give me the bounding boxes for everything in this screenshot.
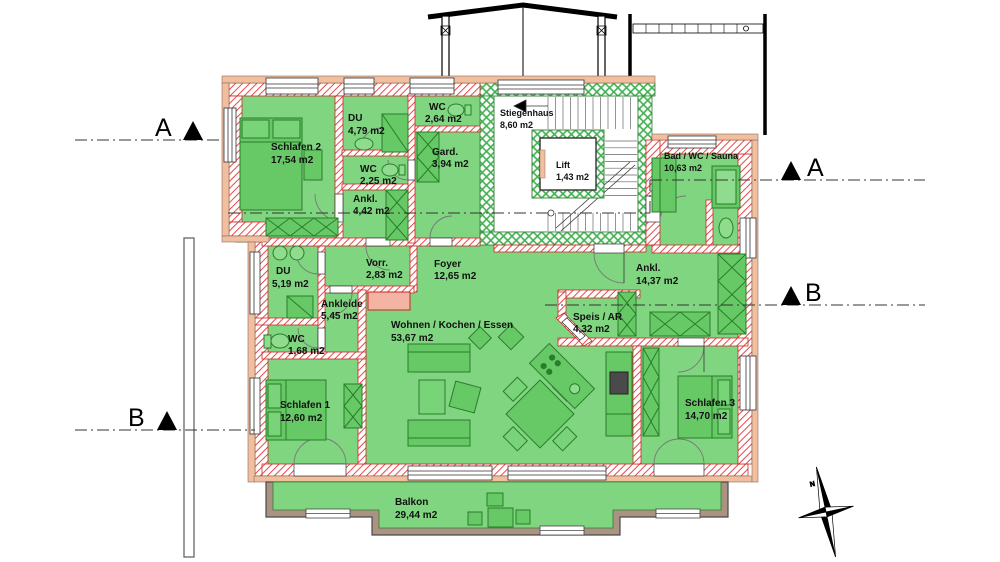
svg-text:Schlafen 3: Schlafen 3 xyxy=(685,398,735,409)
svg-text:Ankl.: Ankl. xyxy=(353,194,378,205)
svg-text:Bad / WC / Sauna: Bad / WC / Sauna xyxy=(664,151,739,161)
svg-text:WC: WC xyxy=(360,164,377,175)
svg-text:1,68 m2: 1,68 m2 xyxy=(288,346,325,357)
svg-text:A: A xyxy=(155,114,172,142)
section-marker-b-right: B xyxy=(781,279,822,307)
window xyxy=(668,136,716,148)
svg-text:DU: DU xyxy=(348,113,362,124)
svg-text:Speis / AR: Speis / AR xyxy=(573,312,623,323)
toilet-bad xyxy=(719,218,733,238)
svg-text:14,70 m2: 14,70 m2 xyxy=(685,411,728,422)
window xyxy=(740,356,756,410)
balcony xyxy=(266,482,728,535)
kitchen-counter xyxy=(606,352,632,436)
wardrobe-schlafen-1 xyxy=(344,384,362,428)
window xyxy=(224,108,236,162)
section-marker-a-right: A xyxy=(781,154,824,182)
svg-text:4,42 m2: 4,42 m2 xyxy=(353,206,390,217)
sofa xyxy=(408,344,470,372)
svg-text:5,19 m2: 5,19 m2 xyxy=(272,279,309,290)
svg-text:1,43 m2: 1,43 m2 xyxy=(556,172,589,182)
room-ankleide: Ankleide5,45 m2 xyxy=(321,299,363,322)
svg-text:2,83 m2: 2,83 m2 xyxy=(366,270,403,281)
window xyxy=(410,78,454,94)
svg-text:5,45 m2: 5,45 m2 xyxy=(321,311,358,322)
window xyxy=(250,378,260,434)
wardrobe-ankl-gross-row xyxy=(650,312,710,336)
window xyxy=(344,78,374,94)
svg-text:Schlafen 1: Schlafen 1 xyxy=(280,400,330,411)
window xyxy=(508,466,606,480)
svg-text:2,64 m2: 2,64 m2 xyxy=(425,114,462,125)
svg-text:Lift: Lift xyxy=(556,160,570,170)
wardrobe-schlafen-2 xyxy=(266,218,338,236)
lower-storey-outline xyxy=(184,238,194,557)
svg-text:DU: DU xyxy=(276,266,290,277)
window xyxy=(250,252,260,314)
section-marker-b-left: B xyxy=(128,404,177,432)
washbasin xyxy=(355,138,373,150)
washbasin xyxy=(290,246,304,260)
svg-text:Balkon: Balkon xyxy=(395,497,428,508)
svg-text:8,60 m2: 8,60 m2 xyxy=(500,120,533,130)
north-arrow: N xyxy=(789,461,863,562)
svg-text:4,32 m2: 4,32 m2 xyxy=(573,324,610,335)
svg-text:Ankl.: Ankl. xyxy=(636,263,661,274)
svg-text:17,54 m2: 17,54 m2 xyxy=(271,155,314,166)
sofa xyxy=(408,420,470,446)
shower-du-left xyxy=(287,296,313,318)
wardrobe-ankl-gross-col xyxy=(718,254,746,334)
svg-text:4,79 m2: 4,79 m2 xyxy=(348,126,385,137)
svg-text:Schlafen 2: Schlafen 2 xyxy=(271,142,321,153)
bathtub xyxy=(712,166,740,208)
toilet-wc-mid xyxy=(382,164,405,176)
svg-text:WC: WC xyxy=(429,102,446,113)
window xyxy=(740,218,756,258)
svg-text:3,94 m2: 3,94 m2 xyxy=(432,159,469,170)
floor-plan-page: 12 11 10 9 8 7 xyxy=(0,0,1000,562)
sideboard xyxy=(368,292,410,310)
shower-du-top xyxy=(382,114,408,152)
roof-outline xyxy=(428,5,617,80)
svg-text:B: B xyxy=(128,404,145,432)
svg-text:A: A xyxy=(807,154,824,182)
svg-text:29,44 m2: 29,44 m2 xyxy=(395,510,438,521)
svg-text:B: B xyxy=(805,279,822,307)
svg-text:Foyer: Foyer xyxy=(434,259,461,270)
svg-text:Gard.: Gard. xyxy=(432,147,458,158)
svg-text:10,63 m2: 10,63 m2 xyxy=(664,163,702,173)
svg-text:53,67 m2: 53,67 m2 xyxy=(391,333,434,344)
svg-text:Ankleide: Ankleide xyxy=(321,299,363,310)
window xyxy=(498,80,584,94)
window xyxy=(266,78,318,94)
section-marker-a-left: A xyxy=(155,114,203,142)
floor-plan-drawing: 12 11 10 9 8 7 xyxy=(0,0,1000,562)
north-label: N xyxy=(809,481,815,489)
svg-text:Stiegenhaus: Stiegenhaus xyxy=(500,108,554,118)
washbasin xyxy=(273,246,287,260)
svg-text:WC: WC xyxy=(288,334,305,345)
svg-text:Wohnen / Kochen / Essen: Wohnen / Kochen / Essen xyxy=(391,320,513,331)
wardrobe-schlafen-3 xyxy=(643,348,659,436)
svg-text:Vorr.: Vorr. xyxy=(366,258,388,269)
coffee-table xyxy=(419,380,445,414)
svg-text:12,60 m2: 12,60 m2 xyxy=(280,413,323,424)
svg-text:2,25 m2: 2,25 m2 xyxy=(360,176,397,187)
section-line-node xyxy=(548,210,554,216)
toilet-wc-klein xyxy=(264,334,289,348)
svg-text:14,37 m2: 14,37 m2 xyxy=(636,276,679,287)
svg-text:12,65 m2: 12,65 m2 xyxy=(434,271,477,282)
window xyxy=(408,466,492,480)
